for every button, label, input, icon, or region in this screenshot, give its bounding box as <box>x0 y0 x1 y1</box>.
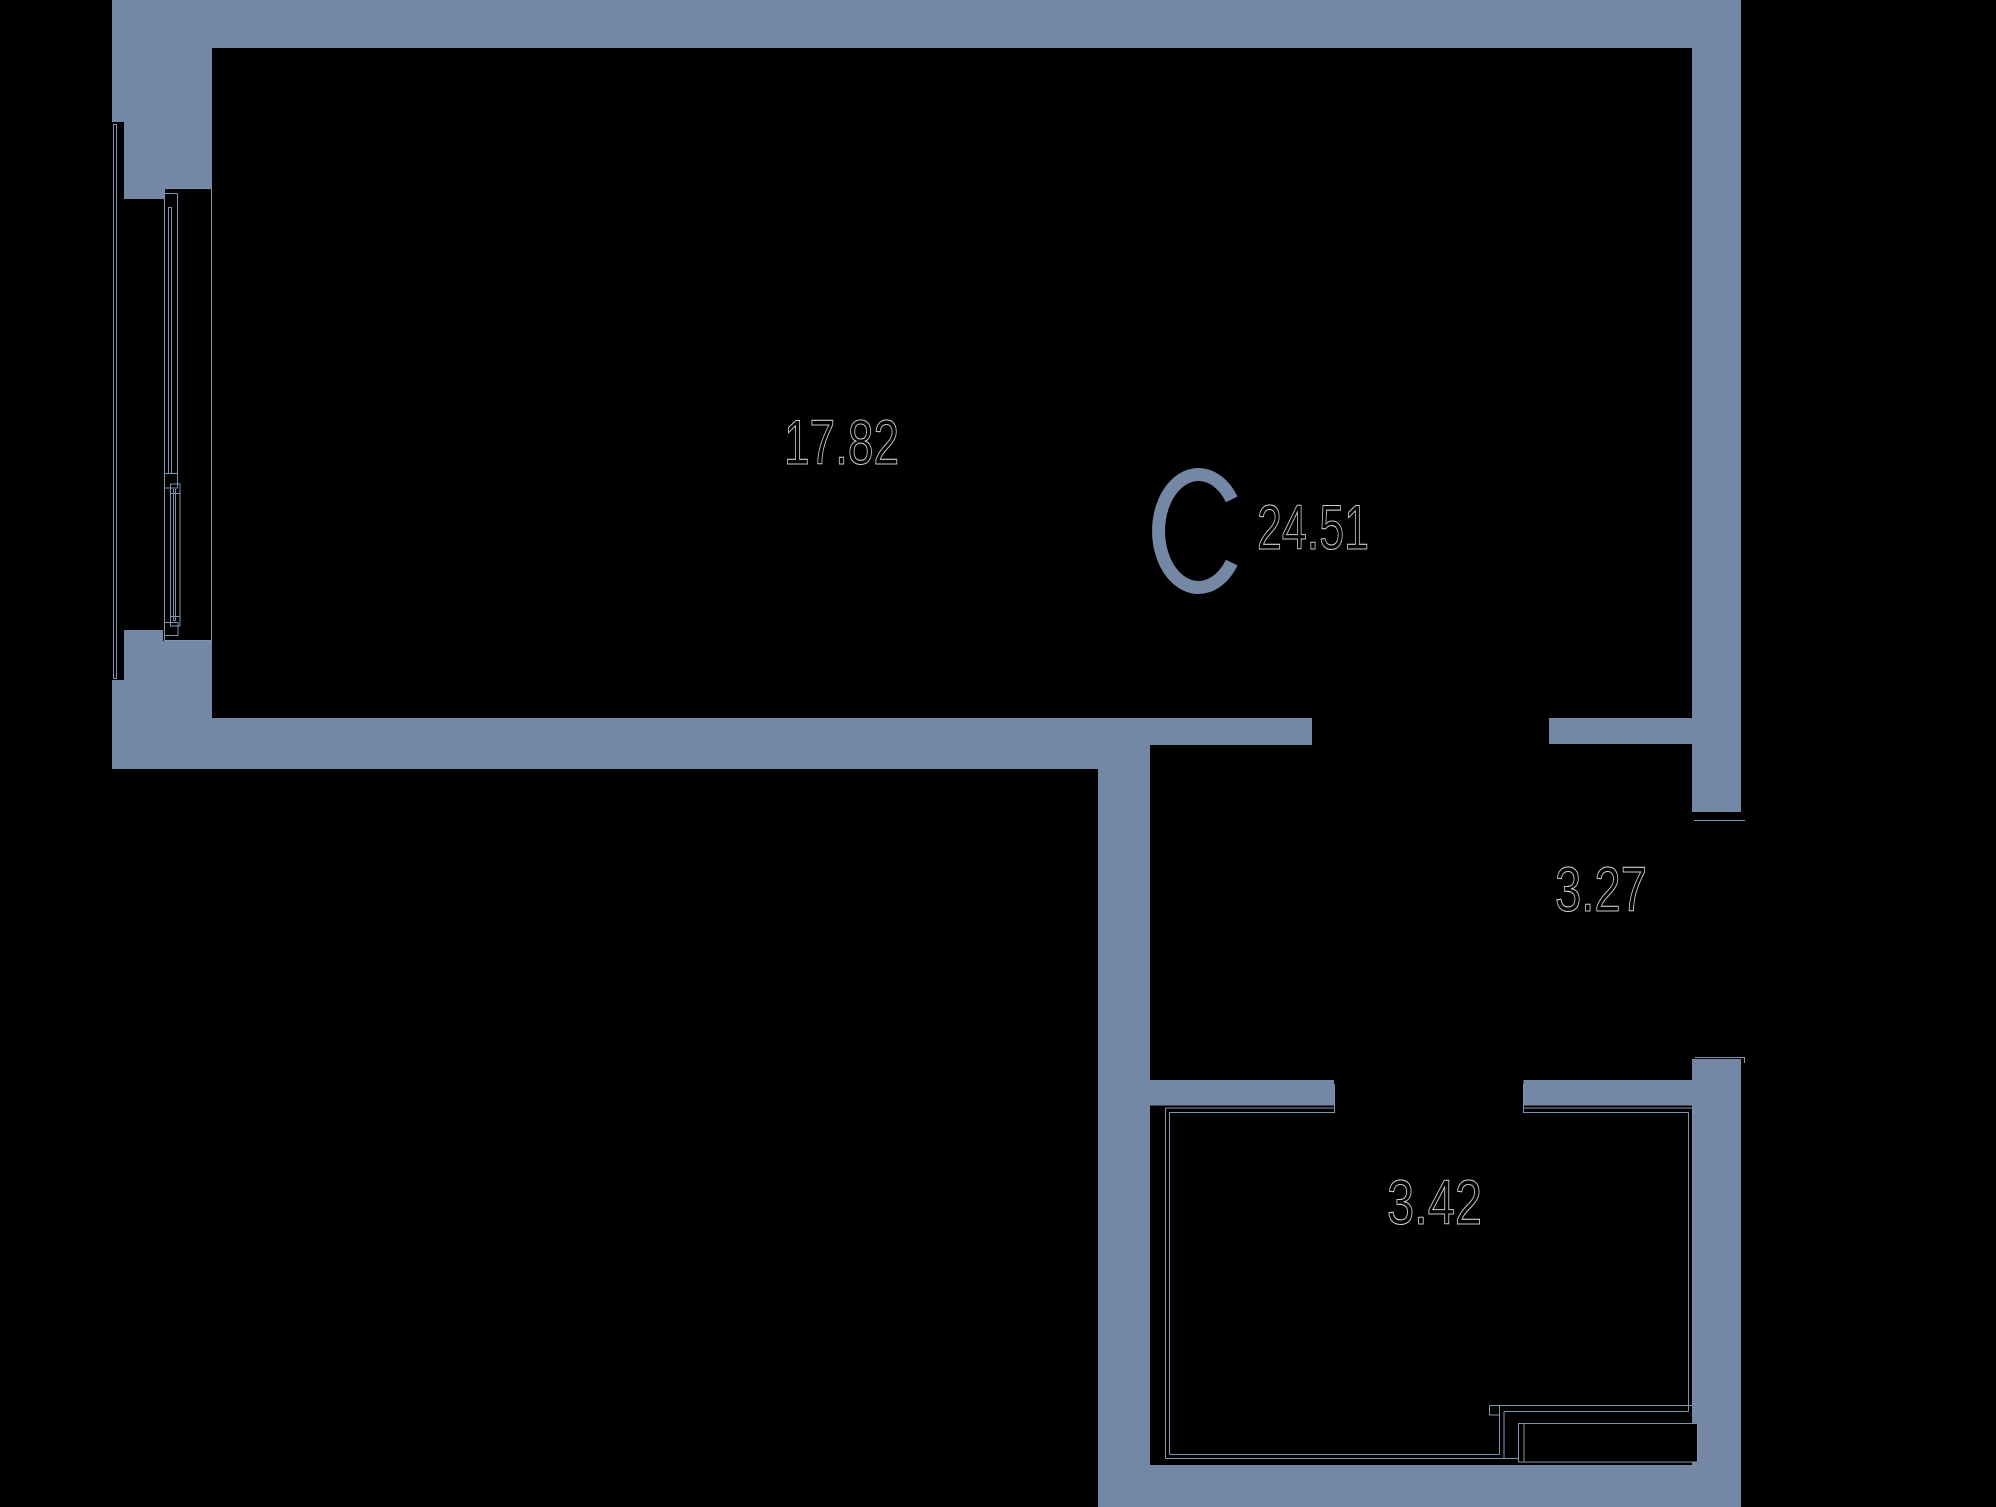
svg-text:24.51: 24.51 <box>1257 493 1369 563</box>
svg-text:17.82: 17.82 <box>784 408 899 478</box>
svg-text:3.42: 3.42 <box>1387 1168 1482 1238</box>
svg-text:3.27: 3.27 <box>1555 855 1647 925</box>
